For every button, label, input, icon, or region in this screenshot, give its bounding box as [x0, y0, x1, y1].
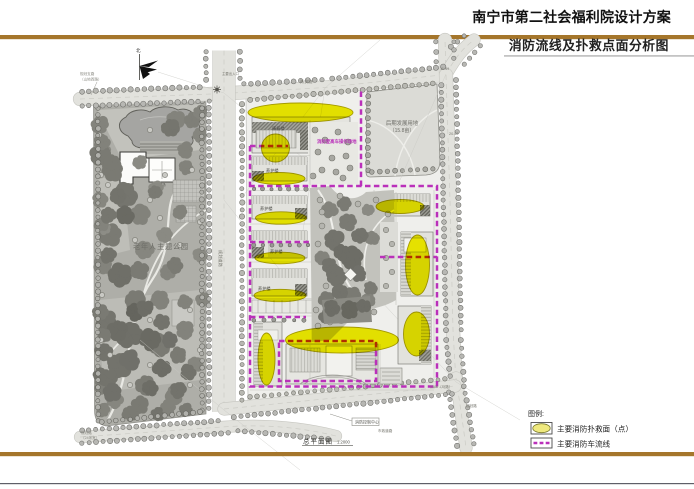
svg-text:（15.8亩）: （15.8亩） [390, 127, 415, 134]
svg-text:主要消防车流线: 主要消防车流线 [557, 438, 611, 448]
svg-text:市政道路: 市政道路 [378, 428, 393, 433]
svg-text:消防控制中心: 消防控制中心 [355, 419, 379, 425]
svg-text:主要出入口: 主要出入口 [222, 71, 239, 76]
svg-text:主要消防扑救面（点）: 主要消防扑救面（点） [557, 424, 633, 434]
svg-text:1:2000: 1:2000 [337, 440, 350, 445]
svg-text:老年人主题公园: 老年人主题公园 [133, 242, 189, 251]
svg-text:20.42: 20.42 [449, 132, 459, 136]
svg-text:北: 北 [136, 47, 141, 54]
svg-text:11.49: 11.49 [440, 67, 449, 71]
svg-text:总平面图: 总平面图 [303, 437, 333, 446]
svg-text:规划道路: 规划道路 [217, 250, 224, 268]
svg-text:后期发展用地: 后期发展用地 [386, 119, 419, 127]
svg-text:图例:: 图例: [528, 409, 544, 418]
svg-text:（山地西路）: （山地西路） [80, 77, 102, 82]
svg-text:秀安路: 秀安路 [300, 78, 313, 85]
svg-text:（24米宽）: （24米宽） [81, 435, 99, 440]
svg-text:1386（马路）: 1386（马路） [430, 384, 452, 389]
svg-text:南宁市第二社会福利院设计方案: 南宁市第二社会福利院设计方案 [472, 9, 672, 25]
svg-text:规划路: 规划路 [81, 430, 92, 435]
svg-text:养护楼: 养护楼 [260, 205, 273, 212]
svg-text:康复楼: 康复楼 [272, 125, 285, 132]
svg-text:规划支路: 规划支路 [80, 71, 95, 76]
svg-text:消防登高车操作场地: 消防登高车操作场地 [317, 138, 357, 145]
svg-text:规划路: 规划路 [466, 403, 477, 408]
svg-text:消防流线及扑救点面分析图: 消防流线及扑救点面分析图 [509, 38, 669, 53]
